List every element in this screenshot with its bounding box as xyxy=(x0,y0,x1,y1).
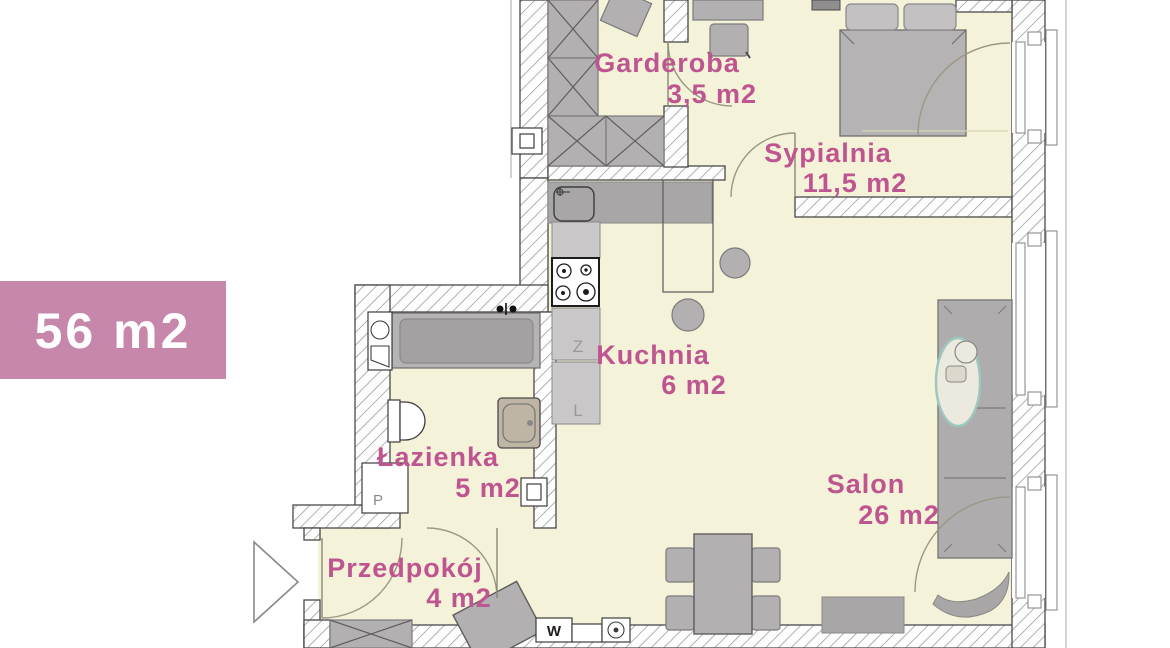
wardrobe-cell xyxy=(548,116,606,166)
tv-sideboard xyxy=(822,597,904,633)
entrance-arrow xyxy=(254,542,298,622)
washing-machine-label: P xyxy=(373,492,383,509)
stool xyxy=(720,248,750,278)
bathroom-small-basin xyxy=(368,312,392,370)
wall-garderoba-right-upper xyxy=(664,0,688,42)
lazienka-area: 5 m2 xyxy=(455,473,521,503)
kuchnia-area: 6 m2 xyxy=(661,370,727,400)
sypialnia-name: Sypialnia xyxy=(764,138,892,168)
kuchnia-name: Kuchnia xyxy=(596,340,710,370)
fridge-label: L xyxy=(573,401,582,420)
washbasin xyxy=(498,398,540,448)
salon-area: 26 m2 xyxy=(858,500,940,530)
bathtub xyxy=(392,303,540,368)
przedpokoj-name: Przedpokój xyxy=(327,553,483,583)
window-salon-1 xyxy=(1012,231,1057,407)
area-badge: 56 m2 xyxy=(0,281,226,379)
dining-chair xyxy=(752,548,780,582)
dining-chair xyxy=(666,548,694,582)
przedpokoj-area: 4 m2 xyxy=(426,583,492,613)
person-on-sofa xyxy=(936,338,980,426)
sofa xyxy=(936,300,1012,558)
wardrobe-cell xyxy=(548,58,598,116)
window-bedroom xyxy=(1012,30,1057,145)
kitchen-dishwasher: Z xyxy=(552,308,600,360)
meter-box xyxy=(512,128,542,154)
kitchen-hob xyxy=(552,258,599,306)
hall-wardrobe xyxy=(330,620,412,648)
dining-chair xyxy=(752,596,780,630)
garderoba-name: Garderoba xyxy=(594,48,740,78)
shaft-symbol xyxy=(521,478,547,506)
wardrobe-cell xyxy=(548,0,598,58)
floor-plan-page: Z L xyxy=(0,0,1170,648)
kitchen-counter-left xyxy=(552,222,600,258)
heater-label: W xyxy=(547,623,562,640)
floor-plan: Z L xyxy=(0,0,1170,648)
wardrobe-cell xyxy=(606,116,664,166)
wall-garderoba-right-lower xyxy=(664,106,688,167)
kitchen-fridge-cell: L xyxy=(552,362,600,424)
dining-chair xyxy=(666,596,694,630)
garderoba-area: 3,5 m2 xyxy=(667,79,757,109)
wall-entrance-left-stub-upper xyxy=(304,528,320,540)
wall-top-bit-right xyxy=(956,0,1012,12)
kitchen-counter-top xyxy=(548,182,712,223)
wall-kitchen-top xyxy=(548,166,725,180)
sypialnia-area: 11,5 m2 xyxy=(803,168,908,198)
salon-name: Salon xyxy=(827,469,906,499)
window-salon-2 xyxy=(1012,475,1057,610)
dining-table xyxy=(694,534,752,634)
stool xyxy=(672,299,704,331)
hall-wall-stub xyxy=(304,620,330,648)
dishwasher-label: Z xyxy=(573,337,583,356)
wall-top-bit-left xyxy=(812,0,840,10)
wall-bedroom-bottom xyxy=(795,197,1012,217)
area-badge-text: 56 m2 xyxy=(35,303,192,359)
lazienka-name: Łazienka xyxy=(377,442,499,472)
